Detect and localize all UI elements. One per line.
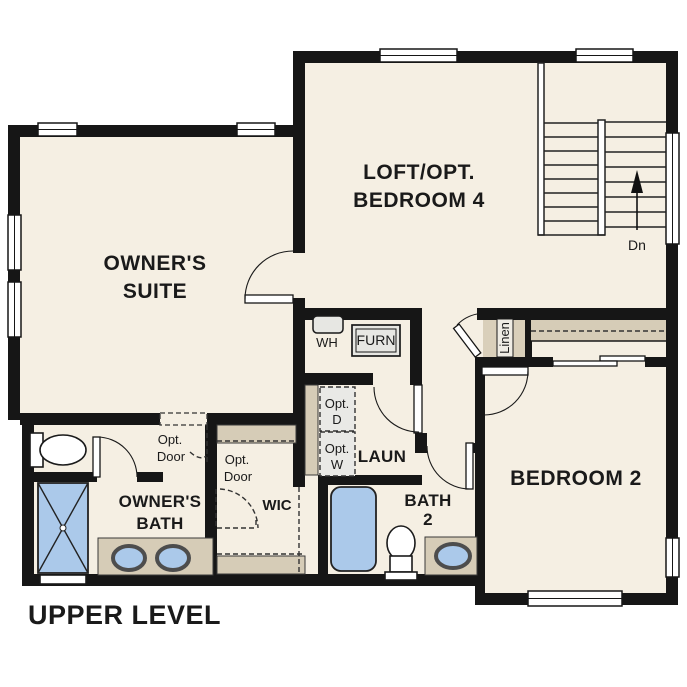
plan-title: UPPER LEVEL — [28, 600, 221, 630]
owners-suite-label-2: SUITE — [123, 280, 187, 303]
opt-door-wic-label-2: Door — [224, 469, 253, 484]
window — [666, 538, 679, 577]
bathtub — [331, 487, 376, 571]
stairs-dn-label: Dn — [628, 237, 646, 253]
loft-label-2: BEDROOM 4 — [353, 189, 485, 212]
opt-dryer-label-1: Opt. — [325, 396, 350, 411]
opt-washer-label-2: W — [331, 457, 344, 472]
floor-plan-drawing: Dn — [0, 0, 687, 687]
laundry-label: LAUN — [358, 447, 406, 466]
vanity-bath2 — [425, 537, 477, 575]
window — [528, 591, 622, 606]
linen-label: Linen — [497, 322, 512, 354]
water-heater-label: WH — [316, 335, 338, 350]
loft-label-1: LOFT/OPT. — [363, 161, 475, 184]
double-vanity — [98, 538, 213, 575]
bath2-label-1: BATH — [404, 491, 451, 510]
opt-door-suite-label-1: Opt. — [158, 432, 183, 447]
bath2-label-2: 2 — [423, 510, 433, 529]
window — [380, 49, 457, 62]
window — [8, 215, 21, 270]
toilet — [30, 433, 86, 467]
window — [666, 133, 679, 244]
window — [8, 282, 21, 337]
window — [237, 123, 275, 136]
toilet-bath2 — [385, 526, 417, 580]
laundry-cabinet — [305, 385, 318, 475]
owners-suite-label-1: OWNER'S — [104, 252, 207, 275]
wic-shelf-bottom — [217, 556, 305, 574]
owners-bath-label-1: OWNER'S — [119, 492, 202, 511]
water-heater — [313, 316, 343, 333]
window — [38, 123, 77, 136]
stair-rail — [538, 63, 544, 235]
window — [576, 49, 633, 62]
wic-label: WIC — [262, 497, 291, 514]
furnace-label: FURN — [357, 332, 396, 348]
shower — [38, 483, 88, 584]
bedroom2-label: BEDROOM 2 — [510, 467, 642, 490]
owners-bath-label-2: BATH — [136, 514, 183, 533]
opt-dryer-label-2: D — [332, 412, 341, 427]
opt-door-suite-label-2: Door — [157, 449, 186, 464]
opt-washer-label-1: Opt. — [325, 441, 350, 456]
opt-door-wic-label-1: Opt. — [225, 452, 250, 467]
stair-center-rail — [598, 120, 605, 235]
floor-plan: Dn — [0, 0, 687, 687]
